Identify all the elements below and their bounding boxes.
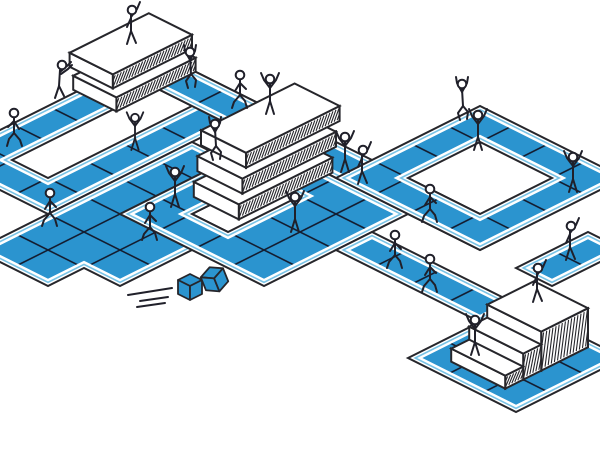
path-region-right-pad: [516, 232, 600, 286]
speed-lines: [128, 288, 172, 307]
stick-figure-push: [55, 61, 72, 98]
isometric-teamwork-illustration: [0, 0, 600, 450]
flying-cube-icon: [178, 274, 202, 300]
illustration-canvas: [0, 0, 600, 450]
